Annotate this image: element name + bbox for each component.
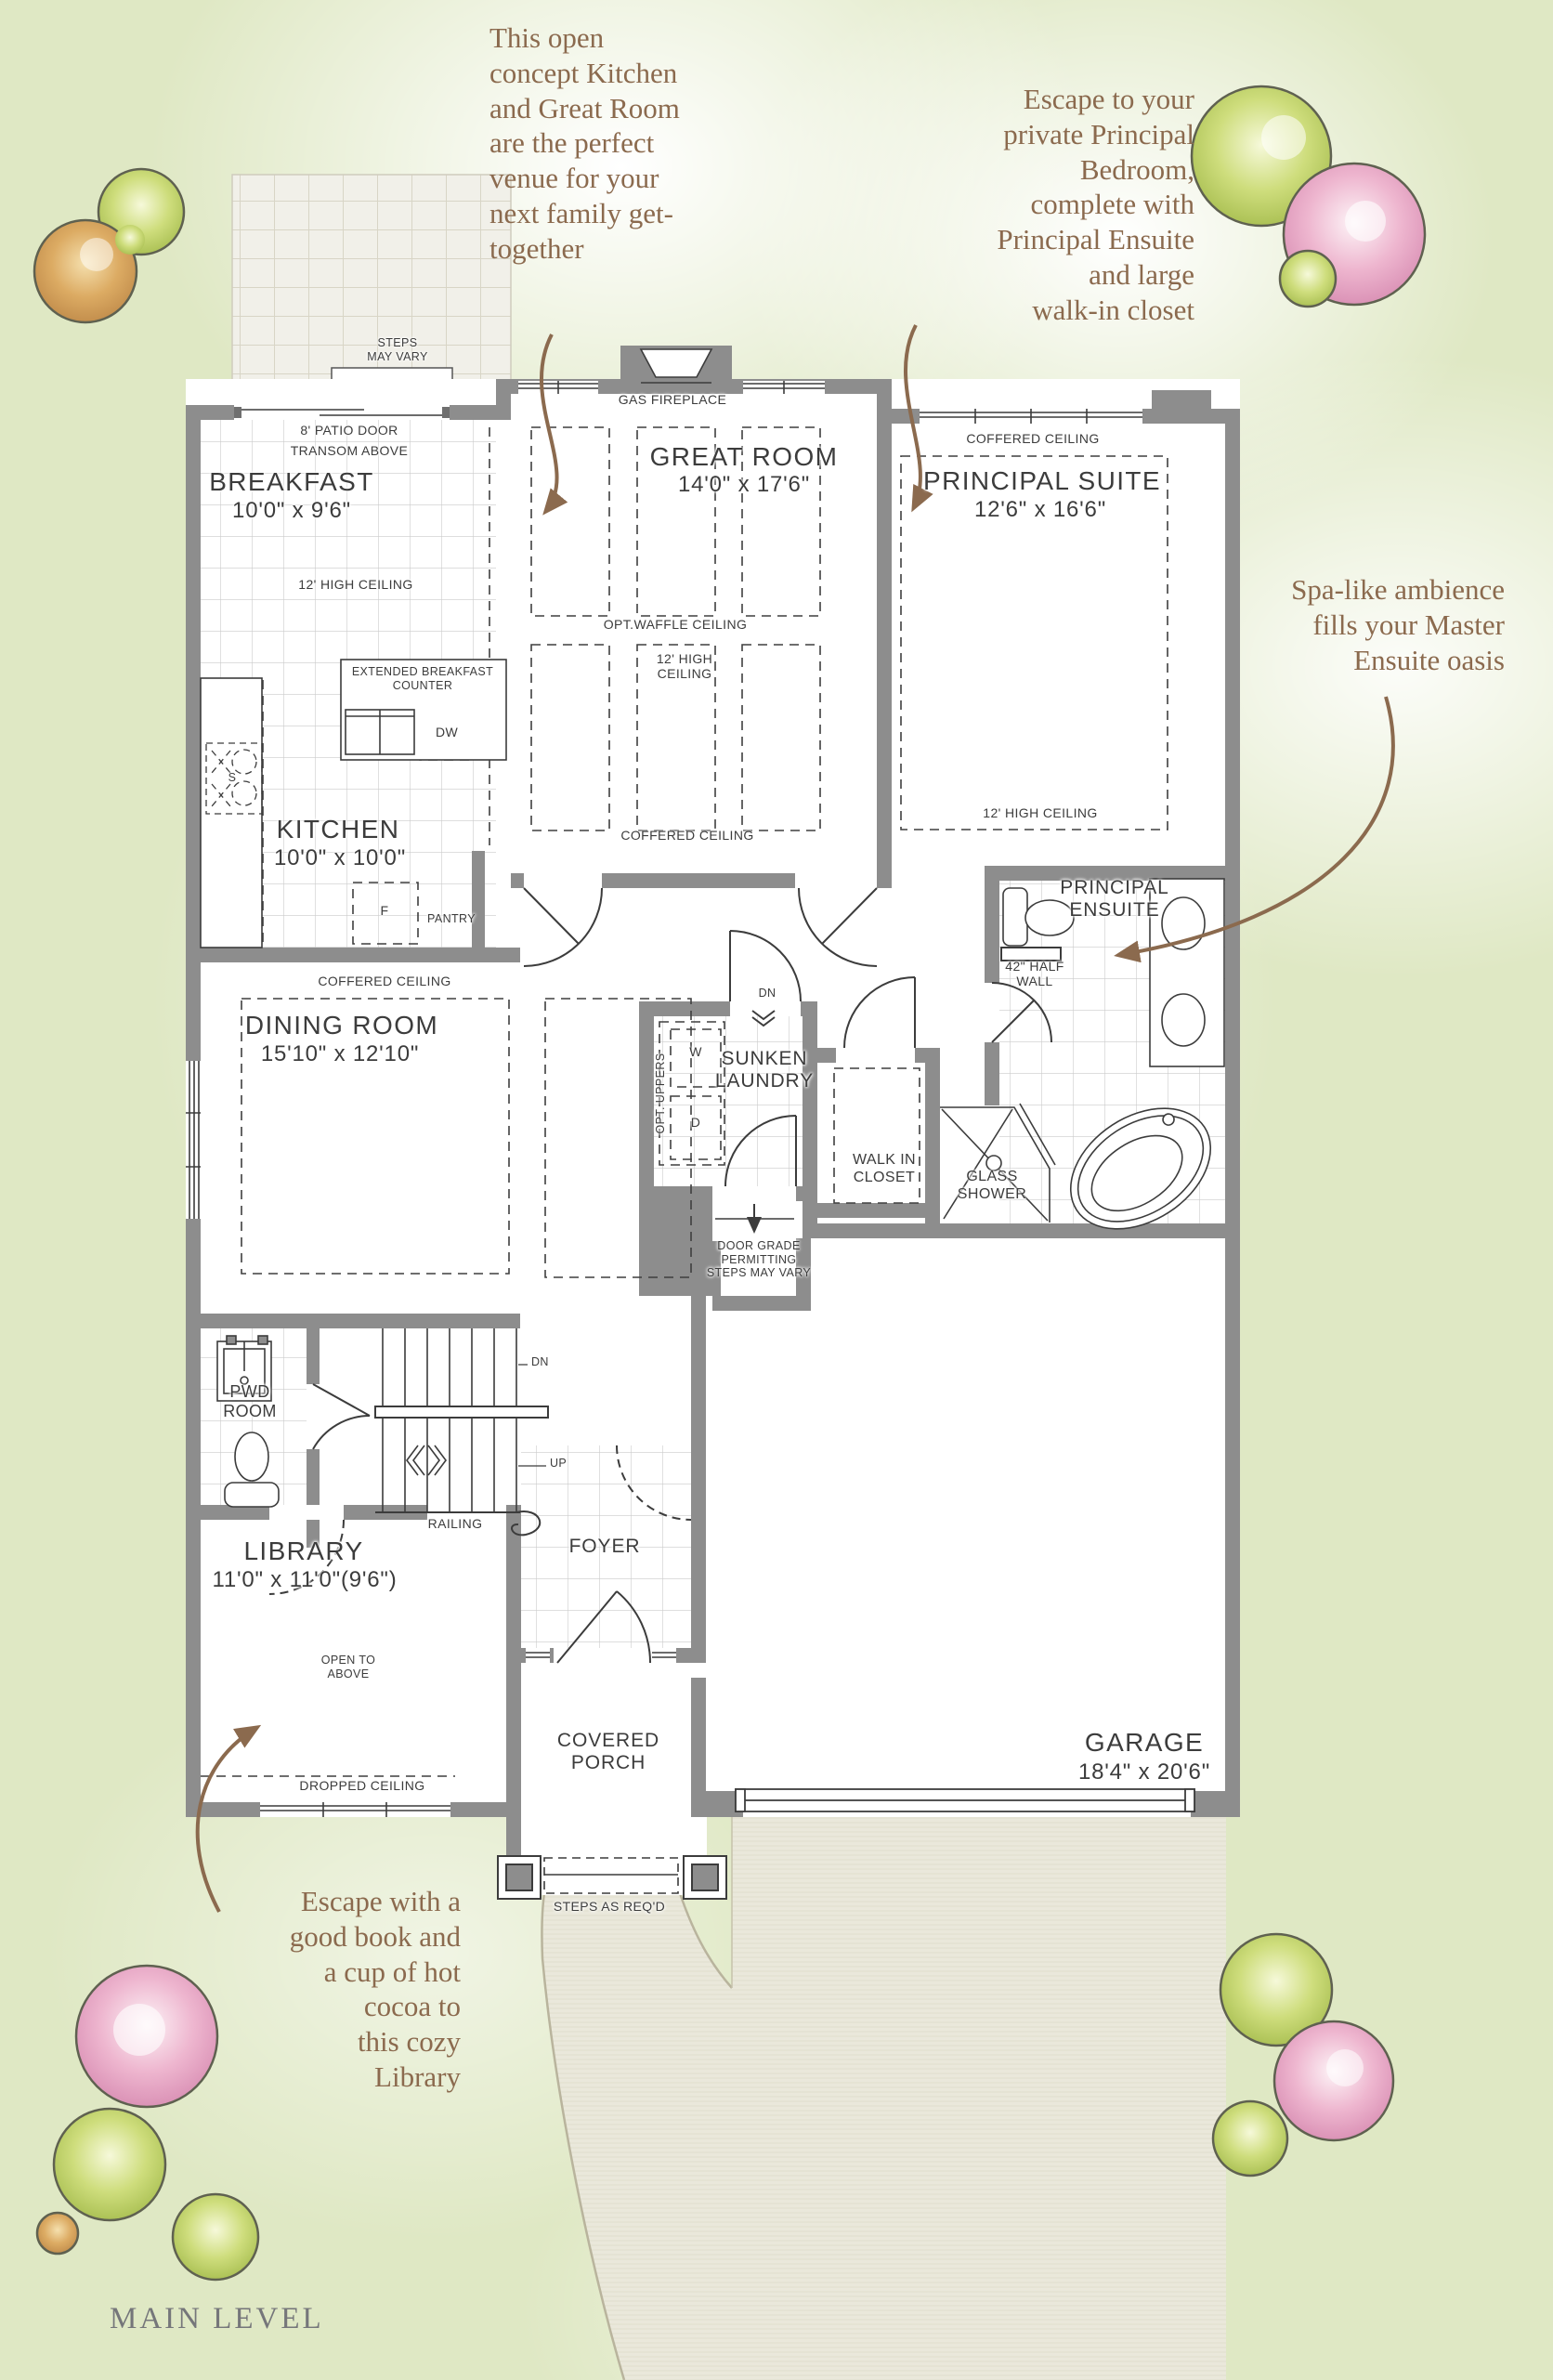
label-suite-ceiling: 12' HIGH CEILING xyxy=(983,805,1097,820)
label-dishwasher: DW xyxy=(436,725,458,739)
label-gas-fireplace: GAS FIREPLACE xyxy=(619,392,726,407)
annotation-kitchen-great-room: This open concept Kitchen and Great Room… xyxy=(489,20,680,267)
tree-top-left xyxy=(34,169,184,322)
label-opt-uppers: OPT. UPPERS xyxy=(654,1053,668,1133)
label-door-grade: DOOR GRADE PERMITTING STEPS MAY VARY xyxy=(707,1239,811,1280)
label-half-wall: 42" HALF WALL xyxy=(1005,959,1064,988)
label-suite-coffered: COFFERED CEILING xyxy=(966,431,1099,446)
room-label-principal-suite: PRINCIPAL SUITE xyxy=(923,466,1161,496)
great-room-window-right xyxy=(743,381,825,394)
room-label-foyer: FOYER xyxy=(569,1536,641,1558)
great-room-window-left xyxy=(518,381,598,394)
room-label-library: LIBRARY xyxy=(243,1537,363,1566)
room-label-closet: WALK IN CLOSET xyxy=(853,1152,916,1186)
room-label-dining: DINING ROOM xyxy=(245,1011,438,1040)
label-dining-coffered: COFFERED CEILING xyxy=(318,974,450,988)
room-label-pwd: PWD ROOM xyxy=(223,1382,277,1421)
kitchen-counter xyxy=(201,678,262,948)
label-breakfast-ceiling: 12' HIGH CEILING xyxy=(298,577,412,592)
label-pantry: PANTRY xyxy=(427,912,476,926)
room-dims-great-room: 14'0" x 17'6" xyxy=(678,472,810,498)
gas-fireplace xyxy=(620,346,732,383)
label-open-to-above: OPEN TO ABOVE xyxy=(321,1654,376,1680)
room-label-garage: GARAGE xyxy=(1085,1728,1204,1758)
label-dn-hall: DN xyxy=(759,987,776,1000)
label-dryer: D xyxy=(691,1115,701,1130)
room-label-breakfast: BREAKFAST xyxy=(209,467,374,497)
room-dims-garage: 18'4" x 20'6" xyxy=(1078,1759,1210,1785)
label-dropped-ceiling: DROPPED CEILING xyxy=(299,1778,424,1793)
label-extended-counter: EXTENDED BREAKFAST COUNTER xyxy=(352,665,493,692)
rear-patio xyxy=(232,175,511,407)
tree-top-right xyxy=(1192,86,1425,307)
laundry-floor xyxy=(654,1016,803,1186)
label-opt-waffle: OPT.WAFFLE CEILING xyxy=(604,617,747,632)
label-patio-steps: STEPS MAY VARY xyxy=(367,336,428,363)
room-label-great-room: GREAT ROOM xyxy=(650,442,839,472)
label-great-room-ceiling: 12' HIGH CEILING xyxy=(657,651,712,681)
stair-railing-mid xyxy=(375,1406,548,1418)
garage-door xyxy=(736,1789,1194,1811)
room-label-kitchen: KITCHEN xyxy=(277,815,400,844)
patio-door xyxy=(234,405,450,420)
tree-bottom-right xyxy=(1213,1934,1393,2176)
room-label-laundry: SUNKEN LAUNDRY xyxy=(715,1048,814,1093)
label-railing: RAILING xyxy=(428,1516,483,1531)
dining-window xyxy=(186,1061,201,1219)
annotation-principal-bedroom: Escape to your private Principal Bedroom… xyxy=(888,82,1194,328)
label-dn-stairs: DN xyxy=(531,1355,549,1369)
label-sink: S xyxy=(228,771,237,785)
driveway xyxy=(542,1811,1226,2380)
room-dims-principal-suite: 12'6" x 16'6" xyxy=(974,497,1106,523)
library-window xyxy=(260,1802,450,1817)
front-walkway xyxy=(542,1893,732,2380)
label-up-stairs: UP xyxy=(550,1457,567,1471)
label-fridge: F xyxy=(381,903,389,918)
plan-title: MAIN LEVEL xyxy=(110,2302,324,2336)
label-patio-door: 8' PATIO DOOR xyxy=(300,423,398,438)
room-label-ensuite: PRINCIPAL ENSUITE xyxy=(1060,877,1168,922)
floor-plan-page: This open concept Kitchen and Great Room… xyxy=(0,0,1553,2380)
label-washer: W xyxy=(689,1044,702,1059)
label-great-room-coffered: COFFERED CEILING xyxy=(620,828,753,843)
room-dims-dining: 15'10" x 12'10" xyxy=(261,1041,419,1067)
room-dims-breakfast: 10'0" x 9'6" xyxy=(232,498,351,524)
annotation-master-ensuite: Spa-like ambience fills your Master Ensu… xyxy=(1226,572,1505,677)
room-label-covered-porch: COVERED PORCH xyxy=(557,1730,659,1775)
room-dims-library: 11'0" x 11'0"(9'6") xyxy=(212,1567,397,1593)
annotation-library: Escape with a good book and a cup of hot… xyxy=(201,1884,461,2095)
label-glass-shower: GLASS SHOWER xyxy=(958,1169,1026,1203)
room-dims-kitchen: 10'0" x 10'0" xyxy=(274,845,406,871)
label-steps-reqd: STEPS AS REQ'D xyxy=(554,1899,665,1914)
label-transom: TRANSOM ABOVE xyxy=(291,443,409,458)
principal-suite-window xyxy=(920,409,1142,424)
